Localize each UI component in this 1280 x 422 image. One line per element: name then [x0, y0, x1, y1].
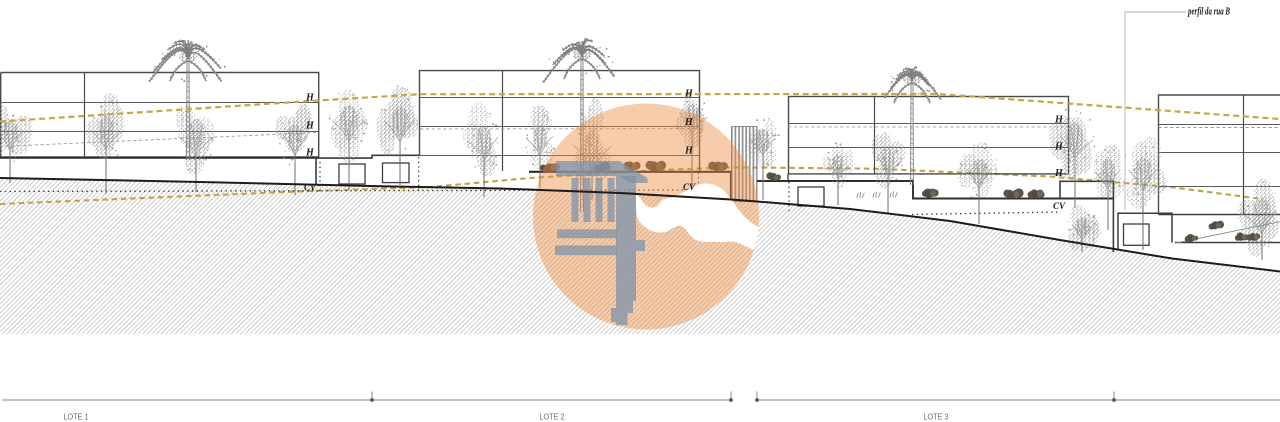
- svg-text:H: H: [1054, 142, 1064, 153]
- svg-text:H: H: [684, 117, 694, 128]
- svg-text:H: H: [305, 93, 315, 104]
- svg-text:H: H: [1054, 115, 1064, 126]
- svg-text:H: H: [1054, 168, 1064, 179]
- svg-text:H: H: [684, 146, 694, 157]
- svg-text:H: H: [305, 148, 315, 159]
- svg-text:CV: CV: [1053, 201, 1066, 211]
- svg-text:perfil da rua B: perfil da rua B: [1187, 7, 1230, 18]
- svg-text:H: H: [684, 89, 694, 100]
- svg-text:H: H: [305, 121, 315, 132]
- svg-text:CV: CV: [683, 182, 696, 192]
- svg-text:CV: CV: [304, 183, 317, 193]
- svg-text:LOTE 2: LOTE 2: [540, 412, 565, 422]
- svg-text:LOTE 1: LOTE 1: [64, 412, 89, 422]
- svg-text:LOTE 3: LOTE 3: [924, 412, 949, 422]
